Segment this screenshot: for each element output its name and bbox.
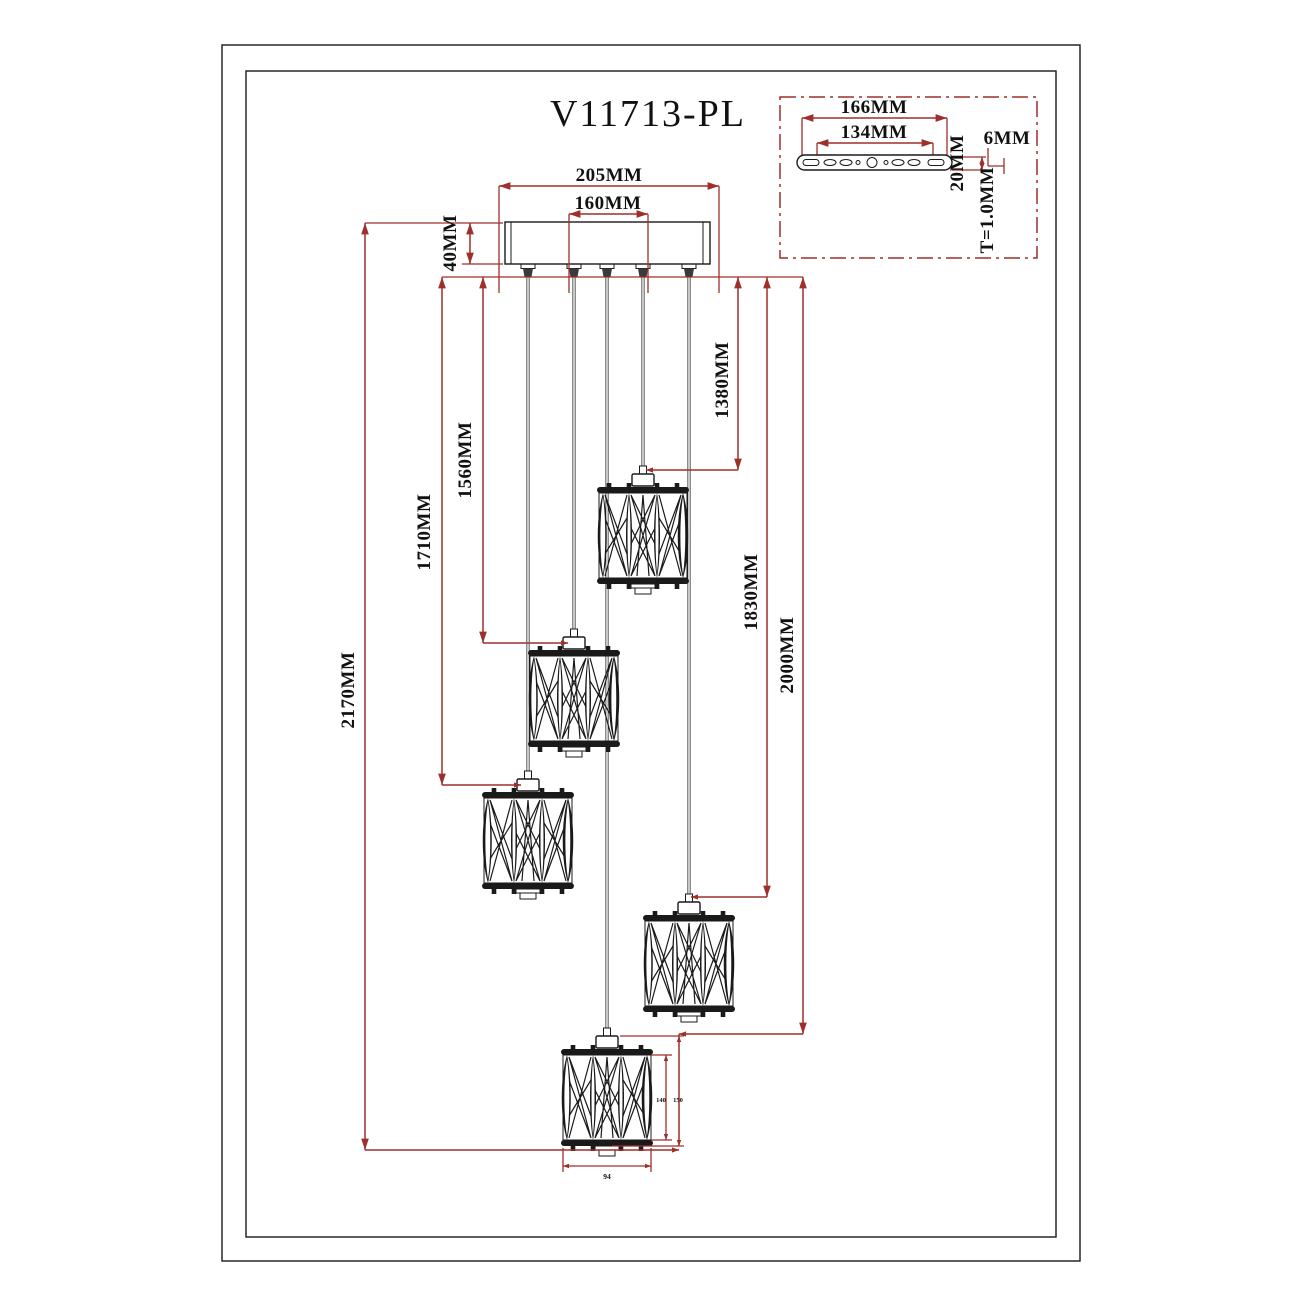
- dim-label-20: 20MM: [947, 135, 968, 192]
- bracket-hole: [884, 161, 888, 165]
- dim-label-166: 166MM: [841, 97, 908, 118]
- detail-view: 166MM 134MM 20MM 6MM T=1.0MM: [780, 97, 1037, 258]
- cord-grip: [600, 264, 614, 277]
- dim-label-thickness: T=1.0MM: [977, 167, 998, 254]
- bracket-hole: [892, 160, 904, 166]
- pendant-shade-4: [643, 894, 735, 1022]
- dim-label-1830: 1830MM: [741, 554, 762, 631]
- dim-label-150: 150: [673, 1097, 683, 1104]
- dim-label-40: 40MM: [440, 215, 461, 272]
- dim-label-6: 6MM: [984, 128, 1031, 149]
- dim-label-160: 160MM: [575, 193, 642, 214]
- dim-label-1560: 1560MM: [455, 422, 476, 499]
- dim-label-94: 94: [603, 1172, 611, 1181]
- bracket-center-hole: [867, 158, 877, 168]
- bracket-hole: [908, 160, 920, 166]
- drawing-sheet: V11713-PL: [0, 0, 1300, 1300]
- dim-label-1710: 1710MM: [414, 494, 435, 571]
- bracket-hole: [856, 161, 860, 165]
- dim-label-140: 140: [656, 1097, 666, 1104]
- bracket-hole: [824, 160, 836, 166]
- dim-label-1380: 1380MM: [712, 342, 733, 419]
- model-number: V11713-PL: [550, 93, 746, 135]
- bracket-slot: [803, 160, 819, 166]
- dim-label-2170: 2170MM: [338, 652, 359, 729]
- ceiling-canopy: [505, 222, 710, 264]
- extension-lines: [365, 118, 1004, 1172]
- technical-drawing: V11713-PL: [0, 0, 1300, 1300]
- bracket-hole: [840, 160, 852, 166]
- pendant-shade-5: [561, 1028, 653, 1156]
- cord-grip: [521, 264, 535, 277]
- cord-grip: [682, 264, 696, 277]
- pendant-shade-3: [482, 771, 574, 899]
- cord-grips: [521, 264, 696, 277]
- dim-label-205: 205MM: [576, 165, 643, 186]
- detail-boundary: [780, 97, 1037, 258]
- bracket-slot: [928, 160, 944, 166]
- dim-label-2000: 2000MM: [777, 617, 798, 694]
- pendant-shade-1: [597, 466, 689, 594]
- mounting-bracket: [797, 155, 952, 170]
- dim-label-134: 134MM: [841, 122, 908, 143]
- dimension-lines: [365, 186, 803, 1166]
